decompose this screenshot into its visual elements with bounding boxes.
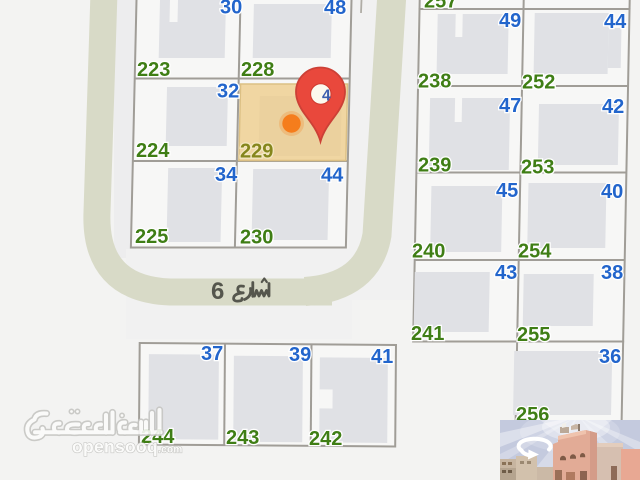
svg-text:37: 37: [201, 343, 223, 365]
svg-text:4: 4: [322, 88, 331, 105]
svg-text:40: 40: [601, 181, 623, 203]
svg-text:47: 47: [499, 95, 521, 117]
svg-text:238: 238: [418, 71, 451, 93]
svg-text:243: 243: [226, 427, 259, 449]
svg-text:223: 223: [137, 59, 170, 81]
svg-text:49: 49: [499, 10, 521, 32]
svg-text:6: 6: [211, 278, 224, 305]
svg-text:44: 44: [604, 11, 627, 33]
svg-text:41: 41: [371, 346, 393, 368]
svg-text:253: 253: [521, 157, 554, 179]
svg-text:45: 45: [496, 180, 518, 202]
svg-text:30: 30: [220, 0, 242, 19]
svg-text:43: 43: [495, 262, 517, 284]
svg-text:255: 255: [517, 324, 550, 346]
svg-text:39: 39: [289, 344, 311, 366]
svg-text:228: 228: [241, 59, 274, 81]
svg-text:242: 242: [309, 428, 342, 450]
svg-text:44: 44: [321, 165, 344, 187]
svg-text:48: 48: [324, 0, 346, 19]
svg-text:254: 254: [518, 241, 552, 263]
svg-text:240: 240: [412, 241, 445, 263]
svg-text:34: 34: [215, 164, 238, 186]
svg-text:230: 230: [240, 227, 273, 249]
svg-text:32: 32: [217, 81, 239, 103]
svg-text:252: 252: [522, 72, 555, 94]
svg-text:224: 224: [136, 140, 170, 162]
svg-text:239: 239: [418, 155, 451, 177]
svg-text:229: 229: [240, 141, 273, 163]
svg-text:225: 225: [135, 226, 168, 248]
svg-text:257: 257: [424, 0, 457, 13]
svg-text:36: 36: [599, 346, 621, 368]
svg-text:38: 38: [601, 262, 623, 284]
svg-text:241: 241: [411, 323, 444, 345]
svg-text:42: 42: [602, 96, 624, 118]
